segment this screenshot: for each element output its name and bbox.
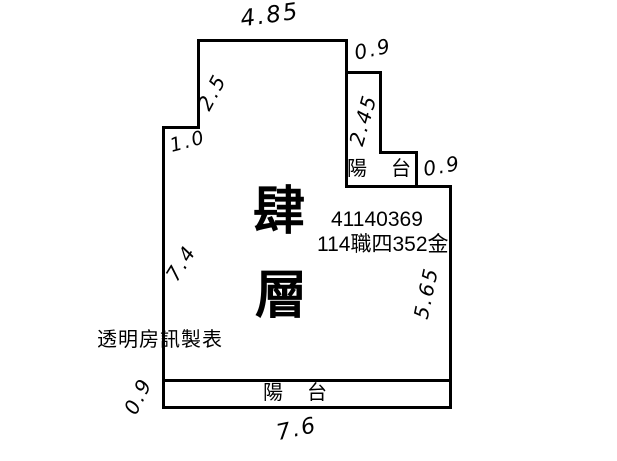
balcony-top-top-line [345, 71, 382, 74]
id-number: 41140369 [331, 209, 423, 230]
dim-balcony-step-width: 0.9 [422, 153, 463, 179]
wall-mid-horizontal [345, 185, 452, 188]
wall-upper-left-vertical [197, 39, 200, 129]
dim-balcony-depth: 2.45 [346, 92, 380, 148]
wall-top [197, 39, 348, 42]
balcony-top-step-horizontal [379, 151, 418, 154]
dim-top-width: 4.85 [239, 0, 301, 31]
dim-bottom-balcony-depth: 0.9 [121, 375, 156, 418]
dim-left-height: 7.4 [163, 242, 200, 285]
floorplan-canvas: 陽 台 41140369 114職四352金 肆 層 透明房訊製表 陽 台 4.… [0, 0, 617, 461]
dim-bottom-width: 7.6 [275, 415, 320, 445]
balcony-top-label: 陽 台 [347, 159, 413, 179]
wall-right-vertical [449, 185, 452, 409]
balcony-bottom-label: 陽 台 [263, 383, 329, 403]
balcony-top-right-vertical-lower [415, 151, 418, 188]
balcony-top-right-vertical-upper [379, 71, 382, 154]
dim-right-height: 5.65 [411, 265, 441, 321]
maker-note: 透明房訊製表 [97, 330, 223, 350]
wall-bottom [162, 406, 452, 409]
floor-label-char-bottom: 層 [255, 270, 307, 322]
dim-top-right-inset: 0.9 [352, 35, 393, 62]
dim-upper-left-inset: 1.0 [168, 128, 208, 156]
floor-label-char-top: 肆 [253, 186, 305, 238]
case-code: 114職四352金 [317, 234, 449, 255]
